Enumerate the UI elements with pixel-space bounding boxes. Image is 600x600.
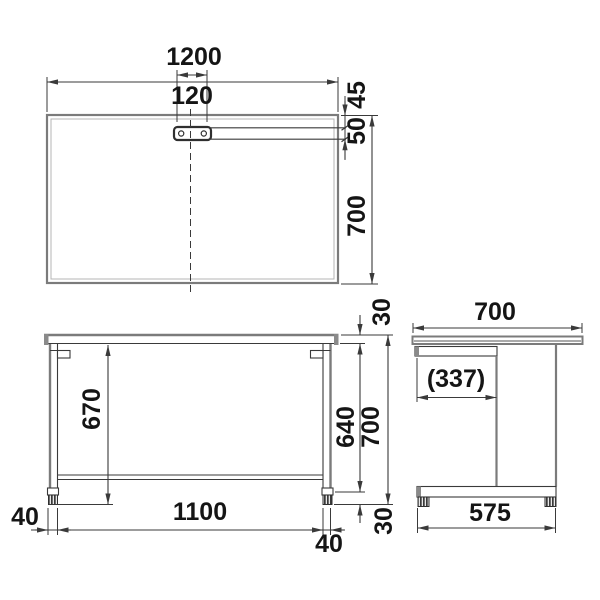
dim-clearance-label: 670 bbox=[78, 388, 106, 430]
side-front-rail bbox=[415, 347, 497, 357]
side-foot-base bbox=[417, 487, 556, 498]
dim-leg-width-right-label: 40 bbox=[315, 530, 343, 558]
side-view: 700 (337) 575 bbox=[413, 298, 583, 533]
dim-top-width-label: 1200 bbox=[166, 43, 222, 71]
top-view: 1200 120 45 50 700 bbox=[47, 43, 378, 296]
dim-top-thickness-label: 30 bbox=[368, 298, 396, 326]
side-rear-adjuster bbox=[545, 497, 556, 507]
right-adjuster bbox=[323, 495, 332, 505]
right-foot bbox=[322, 488, 333, 495]
dim-leg-width-left-label: 40 bbox=[11, 503, 39, 531]
bracket-hole-left bbox=[179, 131, 184, 136]
dim-overall-height-label: 700 bbox=[357, 406, 385, 448]
left-foot bbox=[48, 488, 59, 495]
dim-top-depth-label: 700 bbox=[343, 195, 371, 237]
dim-leg-length-label: 640 bbox=[332, 406, 360, 448]
dim-foot-depth-label: 575 bbox=[469, 499, 511, 527]
left-adjuster bbox=[49, 495, 58, 505]
front-view: 670 40 1100 40 30 640 30 700 bbox=[11, 298, 398, 558]
side-rail-endcap bbox=[415, 347, 419, 357]
dim-side-depth-label: 700 bbox=[474, 298, 516, 326]
dim-knee-clearance-label: (337) bbox=[427, 365, 485, 393]
side-foot-endcap bbox=[417, 487, 421, 498]
dim-edge-to-bracket-label: 45 bbox=[343, 81, 371, 109]
dim-adjuster-height-label: 30 bbox=[370, 507, 398, 535]
dimension-drawing: 1200 120 45 50 700 bbox=[0, 0, 600, 600]
dim-bracket-width-label: 120 bbox=[171, 82, 213, 110]
left-leg-bracket bbox=[58, 351, 71, 359]
side-tabletop bbox=[413, 337, 583, 345]
tabletop-endcap-left bbox=[44, 334, 49, 345]
dim-inner-span-label: 1100 bbox=[173, 498, 227, 526]
tabletop-endcap-right bbox=[334, 334, 339, 345]
drawing-canvas: 1200 120 45 50 700 bbox=[0, 0, 600, 600]
bracket-hole-right bbox=[201, 131, 206, 136]
side-front-adjuster bbox=[418, 497, 429, 507]
right-leg-bracket bbox=[311, 351, 324, 359]
dim-bracket-depth-label: 50 bbox=[343, 117, 371, 145]
